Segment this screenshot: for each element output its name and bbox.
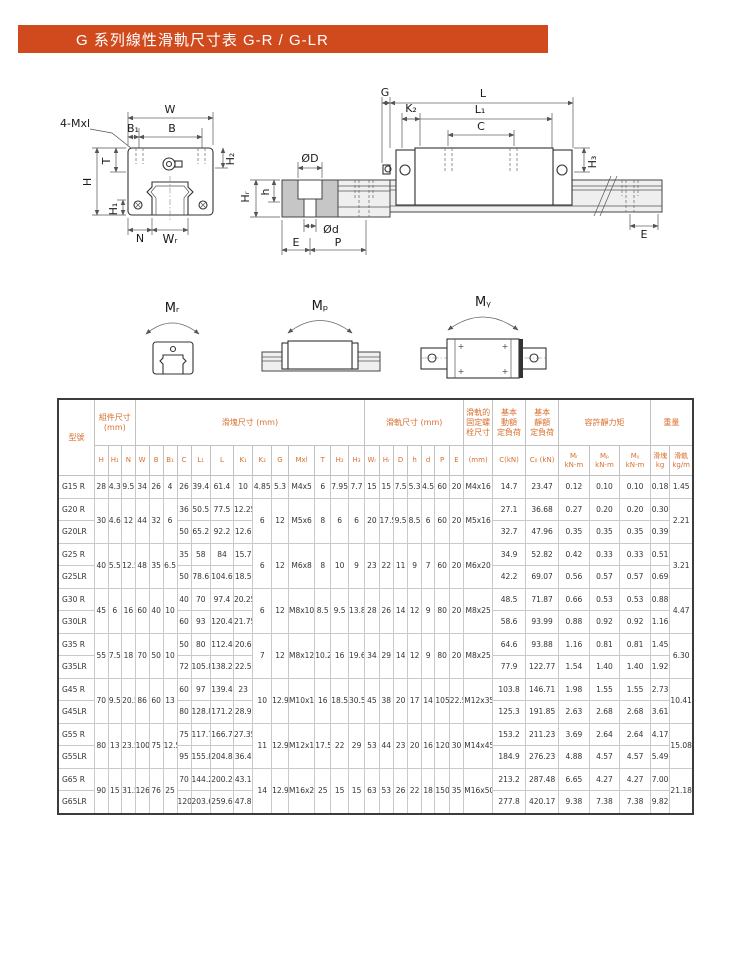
table-cell: 34.9 [493, 543, 526, 566]
model-cell: G55 R [58, 723, 95, 746]
table-cell: 146.71 [526, 678, 559, 701]
table-cell: 53 [379, 768, 393, 814]
table-cell: 17.5 [379, 498, 393, 543]
table-cell: 2.68 [589, 701, 620, 724]
table-cell: M10x17 [288, 678, 314, 723]
table-cell: 38 [379, 678, 393, 723]
table-cell: 126 [135, 768, 149, 814]
table-cell: 40 [177, 588, 191, 611]
table-cell: 12 [408, 588, 422, 633]
table-cell: M4x16 [464, 476, 493, 499]
table-cell: 0.35 [620, 521, 651, 544]
model-cell: G35 R [58, 633, 95, 656]
table-cell: 138.2 [211, 656, 234, 679]
table-cell: 112.4 [211, 633, 234, 656]
table-cell: 0.35 [589, 521, 620, 544]
model-cell: G20LR [58, 521, 95, 544]
table-cell: 93.88 [526, 633, 559, 656]
table-row: G25 R405.512.548356.535588415.7612M6x881… [58, 543, 693, 566]
table-cell: 12.9 [272, 768, 289, 814]
table-cell: 10 [163, 588, 177, 633]
table-cell: 7.95 [331, 476, 349, 499]
table-cell: 17.5 [315, 723, 331, 768]
table-cell: 7 [253, 633, 272, 678]
table-cell: 32 [149, 498, 163, 543]
table-cell: 26 [177, 476, 191, 499]
col-l1: L₁ [191, 446, 210, 476]
table-cell: 7.00 [650, 768, 669, 791]
table-cell: 1.54 [559, 656, 590, 679]
table-cell: 259.6 [211, 791, 234, 814]
table-cell: 20 [449, 476, 463, 499]
table-cell: 20 [449, 498, 463, 543]
table-cell: 39.4 [191, 476, 210, 499]
table-cell: 30.5 [349, 678, 365, 723]
table-cell: 120 [435, 723, 449, 768]
table-cell: 12.6 [233, 521, 252, 544]
table-cell: 16 [421, 723, 435, 768]
table-cell: 12 [122, 498, 136, 543]
table-cell: 1.98 [559, 678, 590, 701]
table-cell: 4.27 [620, 768, 651, 791]
table-cell: 23.5 [122, 723, 136, 768]
dim-label-l: L [480, 87, 487, 100]
table-cell: 6 [253, 498, 272, 543]
table-cell: 20.5 [122, 678, 136, 723]
dim-label-b: B [168, 122, 176, 135]
table-cell: 20.6 [233, 633, 252, 656]
col-d: D [393, 446, 407, 476]
table-cell: 35 [177, 543, 191, 566]
table-cell: 36.4 [233, 746, 252, 769]
table-cell: 71.87 [526, 588, 559, 611]
col-mp: Mₚ kN-m [589, 446, 620, 476]
table-cell: 9.5 [393, 498, 407, 543]
table-cell: 61.4 [211, 476, 234, 499]
table-cell: 0.12 [559, 476, 590, 499]
dim-label-h3: H₃ [586, 156, 599, 169]
col-b1: B₁ [163, 446, 177, 476]
table-cell: 12 [272, 588, 289, 633]
table-header: 型號 組件尺寸 (mm) 滑塊尺寸 (mm) 滑軌尺寸 (mm) 滑軌的 固定螺… [58, 399, 693, 476]
table-cell: 11 [393, 543, 407, 588]
table-cell: 0.18 [650, 476, 669, 499]
table-cell: 18.5 [331, 678, 349, 723]
table-cell: 0.42 [559, 543, 590, 566]
table-row: G55 R801323.51007512.575117.7166.727.351… [58, 723, 693, 746]
table-cell: 70 [135, 633, 149, 678]
col-wr: Wᵣ [365, 446, 379, 476]
table-cell: 9.38 [559, 791, 590, 814]
col-p: P [435, 446, 449, 476]
spec-table: 型號 組件尺寸 (mm) 滑塊尺寸 (mm) 滑軌尺寸 (mm) 滑軌的 固定螺… [57, 398, 694, 815]
table-cell: 20 [393, 678, 407, 723]
table-cell: 2.63 [559, 701, 590, 724]
table-cell: M6x8 [288, 543, 314, 588]
table-cell: 53 [365, 723, 379, 768]
table-cell: 15.08 [670, 723, 693, 768]
table-cell: 60 [177, 611, 191, 634]
table-cell: 10 [253, 678, 272, 723]
table-cell: 0.10 [589, 476, 620, 499]
table-cell: 12 [272, 498, 289, 543]
table-cell: 28.9 [233, 701, 252, 724]
table-cell: 1.40 [620, 656, 651, 679]
header-group-weight: 重量 [650, 399, 693, 446]
table-cell: 26 [149, 476, 163, 499]
dim-label-l1: L₁ [475, 103, 486, 116]
table-cell: 78.6 [191, 566, 210, 589]
table-cell: 6 [253, 588, 272, 633]
table-cell: 60 [177, 678, 191, 701]
table-cell: 75 [149, 723, 163, 768]
model-cell: G30 R [58, 588, 95, 611]
table-cell: 16 [315, 678, 331, 723]
table-cell: 12 [408, 633, 422, 678]
table-cell: 0.33 [589, 543, 620, 566]
table-cell: 23.47 [526, 476, 559, 499]
col-block-kg: 滑塊 kg [650, 446, 669, 476]
table-cell: 8.5 [408, 498, 422, 543]
table-cell: 6 [349, 498, 365, 543]
table-cell: 42.2 [493, 566, 526, 589]
table-cell: 30 [95, 498, 109, 543]
table-cell: 22 [331, 723, 349, 768]
table-cell: 4.27 [589, 768, 620, 791]
table-cell: 122.77 [526, 656, 559, 679]
table-cell: 6 [108, 588, 122, 633]
table-cell: 16 [331, 633, 349, 678]
table-cell: 20 [408, 723, 422, 768]
table-cell: 47.96 [526, 521, 559, 544]
table-cell: 0.81 [589, 633, 620, 656]
col-h3: H₃ [349, 446, 365, 476]
technical-diagram: W B₁ B 4-Mxl H T H₁ [0, 80, 750, 398]
table-cell: 287.48 [526, 768, 559, 791]
table-cell: 6.65 [559, 768, 590, 791]
table-cell: 10.41 [670, 678, 693, 723]
table-cell: 76 [149, 768, 163, 814]
table-cell: 0.81 [620, 633, 651, 656]
table-cell: M5x16 [464, 498, 493, 543]
table-cell: 60 [149, 678, 163, 723]
moment-label-mr: Mᵣ [165, 301, 180, 316]
moment-mr-drawing: Mᵣ [146, 301, 199, 374]
table-cell: 47.8 [233, 791, 252, 814]
table-cell: 63 [365, 768, 379, 814]
table-cell: 80 [435, 588, 449, 633]
table-cell: 14 [393, 633, 407, 678]
table-cell: 4.85 [253, 476, 272, 499]
col-h1: H₁ [108, 446, 122, 476]
table-cell: 0.33 [620, 543, 651, 566]
table-cell: 4.57 [620, 746, 651, 769]
table-cell: 104.6 [211, 566, 234, 589]
table-cell: 1.45 [650, 633, 669, 656]
table-cell: 5.49 [650, 746, 669, 769]
header-group-static: 基本 靜額 定負荷 [526, 399, 559, 446]
table-cell: 6 [163, 498, 177, 543]
table-cell: M16x50 [464, 768, 493, 814]
table-cell: 10 [331, 543, 349, 588]
table-cell: 6 [315, 476, 331, 499]
table-cell: 93 [191, 611, 210, 634]
moment-mp-drawing: Mₚ [262, 299, 380, 371]
table-cell: M6x20 [464, 543, 493, 588]
table-cell: 28 [365, 588, 379, 633]
dim-label-big-d: ØD [301, 152, 318, 165]
table-cell: 4.88 [559, 746, 590, 769]
table-cell: 21.75 [233, 611, 252, 634]
table-cell: 184.9 [493, 746, 526, 769]
table-cell: 277.8 [493, 791, 526, 814]
table-cell: 12.9 [272, 723, 289, 768]
table-cell: 40 [95, 543, 109, 588]
table-cell: 100 [135, 723, 149, 768]
table-row: G30 R45616604010407097.420.25612M8x108.5… [58, 588, 693, 611]
table-cell: 155.8 [191, 746, 210, 769]
table-cell: 65.2 [191, 521, 210, 544]
table-cell: 18 [122, 633, 136, 678]
table-cell: 5.3 [408, 476, 422, 499]
table-cell: 60 [435, 476, 449, 499]
table-cell: 60 [435, 498, 449, 543]
table-cell: 14 [393, 588, 407, 633]
table-cell: 92.2 [211, 521, 234, 544]
table-cell: 93.99 [526, 611, 559, 634]
table-cell: 45 [95, 588, 109, 633]
table-cell: 58 [191, 543, 210, 566]
table-cell: 27.1 [493, 498, 526, 521]
table-row: G15 R284.39.5342642639.461.4104.855.3M4x… [58, 476, 693, 499]
table-cell: 15 [108, 768, 122, 814]
col-l: L [211, 446, 234, 476]
table-cell: 23 [233, 678, 252, 701]
table-cell: 2.64 [589, 723, 620, 746]
table-cell: 4.57 [589, 746, 620, 769]
table-cell: 15 [331, 768, 349, 814]
table-cell: 125.3 [493, 701, 526, 724]
dim-label-c: C [477, 120, 485, 133]
table-cell: 95 [177, 746, 191, 769]
table-cell: 2.68 [620, 701, 651, 724]
table-cell: 1.40 [589, 656, 620, 679]
table-cell: 5.3 [272, 476, 289, 499]
table-cell: 9.5 [122, 476, 136, 499]
col-b: B [149, 446, 163, 476]
table-cell: 420.17 [526, 791, 559, 814]
table-cell: 191.85 [526, 701, 559, 724]
table-cell: 8 [315, 498, 331, 543]
table-cell: 22 [379, 543, 393, 588]
model-cell: G55LR [58, 746, 95, 769]
col-c: C [177, 446, 191, 476]
table-cell: 0.66 [559, 588, 590, 611]
table-cell: 0.10 [620, 476, 651, 499]
table-cell: M8x25 [464, 588, 493, 633]
table-cell: 80 [435, 633, 449, 678]
table-cell: M8x10 [288, 588, 314, 633]
dim-label-g: G [381, 86, 390, 99]
table-cell: 2.21 [670, 498, 693, 543]
table-cell: M12x35 [464, 678, 493, 723]
table-cell: 204.8 [211, 746, 234, 769]
table-cell: 7 [421, 543, 435, 588]
col-rail-kg: 滑軌 kg/m [670, 446, 693, 476]
table-cell: 18.5 [233, 566, 252, 589]
table-cell: M8x25 [464, 633, 493, 678]
callout-4mxl: 4-Mxl [60, 117, 90, 130]
table-cell: 0.92 [620, 611, 651, 634]
table-cell: 86 [135, 678, 149, 723]
table-cell: 8.5 [315, 588, 331, 633]
table-cell: 97 [191, 678, 210, 701]
dim-label-h1: H₁ [107, 203, 120, 216]
table-cell: 77.9 [493, 656, 526, 679]
header-model: 型號 [58, 399, 95, 476]
table-cell: 44 [135, 498, 149, 543]
table-cell: 9 [408, 543, 422, 588]
table-cell: 18 [421, 768, 435, 814]
table-cell: 15.7 [233, 543, 252, 566]
table-cell: M8x12 [288, 633, 314, 678]
table-cell: 211.23 [526, 723, 559, 746]
table-cell: 213.2 [493, 768, 526, 791]
table-cell: 34 [365, 633, 379, 678]
table-cell: 0.20 [620, 498, 651, 521]
table-cell: 203.6 [191, 791, 210, 814]
col-w: W [135, 446, 149, 476]
col-mr: Mᵣ kN-m [559, 446, 590, 476]
table-cell: 1.16 [559, 633, 590, 656]
table-cell: 0.51 [650, 543, 669, 566]
table-cell: 30 [449, 723, 463, 768]
table-cell: 7.5 [393, 476, 407, 499]
page-title: G 系列線性滑軌尺寸表 G-R / G-LR [76, 29, 329, 50]
table-cell: 4.17 [650, 723, 669, 746]
page-title-bar: G 系列線性滑軌尺寸表 G-R / G-LR [18, 25, 548, 53]
dim-label-side-e: E [641, 228, 648, 241]
table-cell: 6 [253, 543, 272, 588]
dim-label-small-d: Ød [323, 223, 339, 236]
table-cell: 12.9 [272, 678, 289, 723]
table-cell: 0.35 [559, 521, 590, 544]
model-cell: G65 R [58, 768, 95, 791]
col-bolt-mm: (mm) [464, 446, 493, 476]
table-cell: 26 [379, 588, 393, 633]
table-cell: 35 [149, 543, 163, 588]
table-cell: 97.4 [211, 588, 234, 611]
table-cell: 139.4 [211, 678, 234, 701]
table-cell: 40 [149, 588, 163, 633]
col-t: T [315, 446, 331, 476]
col-my: Mᵧ kN-m [620, 446, 651, 476]
table-cell: 12.25 [233, 498, 252, 521]
table-cell: 8 [315, 543, 331, 588]
table-cell: 6.5 [163, 543, 177, 588]
table-cell: 84 [211, 543, 234, 566]
col-h: H [95, 446, 109, 476]
side-view-drawing: C L₁ L G K₂ H₃ E [381, 86, 662, 241]
table-cell: 60 [135, 588, 149, 633]
table-cell: 69.07 [526, 566, 559, 589]
table-cell: 276.23 [526, 746, 559, 769]
table-cell: 7.7 [349, 476, 365, 499]
table-cell: 9 [349, 543, 365, 588]
col-c0-kn: C₀ (kN) [526, 446, 559, 476]
table-cell: 7.5 [108, 633, 122, 678]
table-cell: 10.2 [315, 633, 331, 678]
table-cell: 1.92 [650, 656, 669, 679]
table-cell: M14x45 [464, 723, 493, 768]
table-cell: 200.2 [211, 768, 234, 791]
table-cell: 20.25 [233, 588, 252, 611]
table-cell: 77.5 [211, 498, 234, 521]
table-cell: 9 [421, 588, 435, 633]
table-cell: 0.53 [620, 588, 651, 611]
table-cell: 5.5 [108, 543, 122, 588]
table-cell: 28 [95, 476, 109, 499]
table-cell: 0.30 [650, 498, 669, 521]
table-cell: 23 [365, 543, 379, 588]
model-cell: G45LR [58, 701, 95, 724]
table-cell: 15 [349, 768, 365, 814]
model-cell: G20 R [58, 498, 95, 521]
moment-my-drawing: Mᵧ [421, 295, 546, 378]
table-cell: 50 [177, 566, 191, 589]
table-cell: 3.61 [650, 701, 669, 724]
table-cell: 80 [177, 701, 191, 724]
table-cell: 1.55 [589, 678, 620, 701]
table-cell: 43.1 [233, 768, 252, 791]
table-cell: 153.2 [493, 723, 526, 746]
table-cell: 20 [449, 633, 463, 678]
table-cell: 20 [449, 588, 463, 633]
table-cell: 23 [393, 723, 407, 768]
col-e: E [449, 446, 463, 476]
table-cell: 25 [315, 768, 331, 814]
moment-label-mp: Mₚ [312, 299, 329, 314]
model-cell: G65LR [58, 791, 95, 814]
table-cell: 48 [135, 543, 149, 588]
dim-label-rail-h: h [259, 188, 272, 195]
table-cell: 2.64 [620, 723, 651, 746]
table-cell: 1.55 [620, 678, 651, 701]
table-cell: 15 [365, 476, 379, 499]
table-cell: 26 [393, 768, 407, 814]
table-cell: 105.8 [191, 656, 210, 679]
header-group-rail: 滑軌尺寸 (mm) [365, 399, 464, 446]
table-cell: 25 [163, 768, 177, 814]
table-cell: 105 [435, 678, 449, 723]
dim-label-n: N [136, 232, 144, 245]
table-cell: 0.20 [589, 498, 620, 521]
model-cell: G25 R [58, 543, 95, 566]
model-cell: G35LR [58, 656, 95, 679]
table-cell: 117.7 [191, 723, 210, 746]
table-cell: 31.5 [122, 768, 136, 814]
table-cell: 103.8 [493, 678, 526, 701]
dim-label-hr: Hᵣ [239, 191, 252, 202]
dim-label-b1: B₁ [127, 122, 139, 135]
table-cell: 4 [163, 476, 177, 499]
table-cell: 0.88 [650, 588, 669, 611]
table-cell: 9 [421, 633, 435, 678]
table-cell: 0.39 [650, 521, 669, 544]
table-row: G35 R557.5187050105080112.420.6712M8x121… [58, 633, 693, 656]
table-cell: 4.47 [670, 588, 693, 633]
table-cell: 55 [95, 633, 109, 678]
